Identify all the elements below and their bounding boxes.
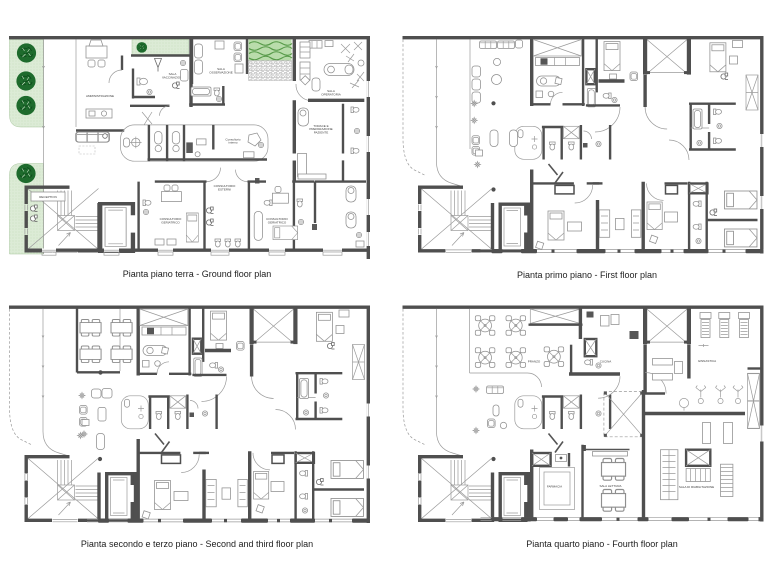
svg-text:SALA LETTURA: SALA LETTURA xyxy=(599,484,621,488)
svg-text:OSSERVAZIONE: OSSERVAZIONE xyxy=(209,70,232,74)
svg-text:PRANZO: PRANZO xyxy=(528,360,541,364)
svg-text:GERIATRICO: GERIATRICO xyxy=(268,220,287,224)
svg-text:GERIATRICO: GERIATRICO xyxy=(161,220,180,224)
svg-text:interno: interno xyxy=(228,141,238,145)
svg-text:RECEPTION: RECEPTION xyxy=(39,195,57,199)
svg-text:ESTERNI: ESTERNI xyxy=(218,187,231,191)
svg-text:VACCINAZIONI: VACCINAZIONI xyxy=(162,75,183,79)
svg-text:Pianta primo piano - First flo: Pianta primo piano - First floor plan xyxy=(517,270,657,280)
svg-text:Pianta secondo e terzo piano -: Pianta secondo e terzo piano - Second an… xyxy=(81,539,313,549)
svg-text:PAZIENTE: PAZIENTE xyxy=(314,130,328,134)
svg-text:Pianta quarto piano - Fourth f: Pianta quarto piano - Fourth floor plan xyxy=(526,539,678,549)
svg-text:CUCINA: CUCINA xyxy=(600,360,612,364)
svg-text:Pianta piano terra - Ground fl: Pianta piano terra - Ground floor plan xyxy=(123,269,272,279)
svg-text:SALA DI RIABILITAZIONE: SALA DI RIABILITAZIONE xyxy=(679,485,714,489)
svg-text:GINNASTICA: GINNASTICA xyxy=(698,359,716,363)
svg-text:FARMACIA: FARMACIA xyxy=(547,485,562,489)
svg-text:OPERATORIA: OPERATORIA xyxy=(321,92,340,96)
svg-text:AMMINISTRAZIONE: AMMINISTRAZIONE xyxy=(86,94,114,98)
